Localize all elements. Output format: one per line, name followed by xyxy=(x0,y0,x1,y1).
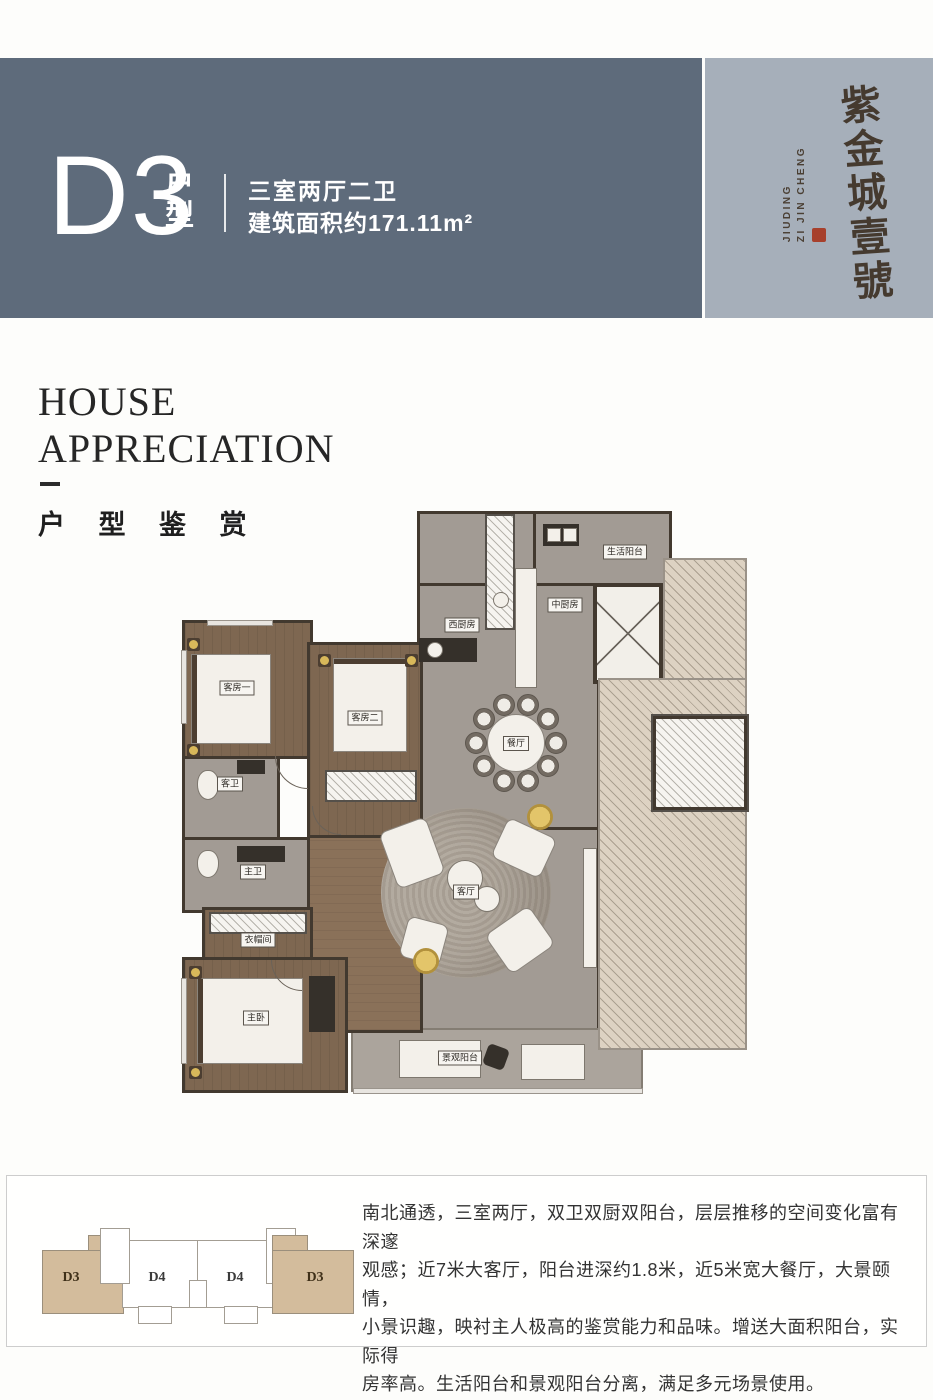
label-guest-room-2: 客房二 xyxy=(347,711,382,726)
common-area-upper xyxy=(665,560,745,680)
dining-chair xyxy=(493,694,515,716)
dining-chair xyxy=(517,694,539,716)
nightstand-lamp xyxy=(405,654,418,667)
elevator-shaft xyxy=(597,587,659,680)
headboard xyxy=(198,979,203,1063)
dining-chair xyxy=(493,770,515,792)
plate-label-d4-left: D4 xyxy=(142,1270,172,1286)
brand-logo-latin: JIUDING ZI JIN CHENG xyxy=(782,146,807,242)
guest-bath-vanity xyxy=(237,760,265,774)
description-line-3: 小景识趣，映衬主人极高的鉴赏能力和品味。增送大面积阳台，实际得 xyxy=(362,1313,914,1370)
bedroom1-top-window xyxy=(207,620,273,626)
master-desk xyxy=(309,976,335,1032)
tv-console xyxy=(583,848,597,968)
label-guest-room-1: 客房一 xyxy=(219,681,254,696)
section-title-en-line2: APPRECIATION xyxy=(38,425,334,472)
bedroom1-window xyxy=(181,650,187,724)
plate-center-stub xyxy=(189,1280,207,1308)
dining-chair xyxy=(545,732,567,754)
unit-area: 建筑面积约171.11m² xyxy=(248,204,473,238)
door-arc xyxy=(275,756,308,789)
washer-fixture xyxy=(493,592,509,608)
unit-type-label: 户 型 xyxy=(165,170,194,232)
brochure-page: { "page": {"background": "#fdfdfb"}, "he… xyxy=(0,0,933,1400)
description-paragraph: 南北通透，三室两厅，双卫双厨双阳台，层层推移的空间变化富有深邃 观感；近7米大客… xyxy=(362,1199,914,1399)
nightstand-lamp xyxy=(189,966,202,979)
plate-label-d3-right: D3 xyxy=(300,1270,330,1286)
gold-side-table xyxy=(413,948,439,974)
guest-bed-2 xyxy=(333,658,407,752)
seal-stamp-icon xyxy=(812,228,826,242)
label-west-kitchen: 西厨房 xyxy=(444,618,479,633)
wardrobe xyxy=(327,772,415,800)
nightstand-lamp xyxy=(318,654,331,667)
utility-shaft xyxy=(487,516,513,628)
headboard xyxy=(334,659,406,664)
label-chinese-kitchen: 中厨房 xyxy=(547,598,582,613)
plate-core-lower xyxy=(224,1306,258,1324)
header-divider xyxy=(224,174,226,232)
label-dining-room: 餐厅 xyxy=(503,736,529,751)
floor-plan: 餐厅 生活阳台 中厨房 西厨房 客房一 客房二 客卫 主卫 衣帽间 xyxy=(175,508,745,1153)
laundry-basin-2 xyxy=(563,528,577,542)
dining-chair xyxy=(517,770,539,792)
balcony-window xyxy=(353,1088,643,1094)
label-master-bedroom: 主卧 xyxy=(243,1011,269,1026)
description-line-1: 南北通透，三室两厅，双卫双厨双阳台，层层推移的空间变化富有深邃 xyxy=(362,1199,914,1256)
label-living-room: 客厅 xyxy=(453,885,479,900)
description-line-4: 房率高。生活阳台和景观阳台分离，满足多元场景使用。 xyxy=(362,1370,914,1399)
nightstand-lamp xyxy=(187,744,200,757)
master-bath-vanity xyxy=(237,846,285,862)
section-title-dash xyxy=(40,482,60,486)
brand-latin-line-2: ZI JIN CHENG xyxy=(796,146,807,242)
section-title-en: HOUSE APPRECIATION xyxy=(38,378,334,472)
plate-label-d4-right: D4 xyxy=(220,1270,250,1286)
headboard xyxy=(192,655,197,743)
dining-table: 餐厅 xyxy=(487,714,545,772)
stair-core xyxy=(653,716,747,810)
plate-label-d3-left: D3 xyxy=(56,1270,86,1286)
kitchen-counter xyxy=(515,568,537,688)
unit-type-char-1: 户 xyxy=(165,170,194,201)
label-life-balcony: 生活阳台 xyxy=(603,545,647,560)
nightstand-lamp xyxy=(189,1066,202,1079)
toilet-fixture xyxy=(197,770,219,800)
guest-bed-1 xyxy=(191,654,271,744)
nightstand-lamp xyxy=(187,638,200,651)
label-cloakroom: 衣帽间 xyxy=(240,933,275,948)
brand-latin-line-1: JIUDING xyxy=(782,146,793,242)
floor-plate-diagram: D3 D4 D4 D3 xyxy=(42,1222,332,1322)
label-master-bath: 主卫 xyxy=(240,865,266,880)
dining-chair xyxy=(465,732,487,754)
section-title-en-line1: HOUSE xyxy=(38,378,334,425)
laundry-basin-1 xyxy=(547,528,561,542)
master-window xyxy=(181,978,187,1064)
description-line-2: 观感；近7米大客厅，阳台进深约1.8米，近5米宽大餐厅，大景颐情， xyxy=(362,1256,914,1313)
balcony-lounge xyxy=(521,1044,585,1080)
label-view-balcony: 景观阳台 xyxy=(438,1051,482,1066)
brand-logo-calligraphy: 紫金城壹號 xyxy=(826,82,899,306)
brand-logo: 紫金城壹號 JIUDING ZI JIN CHENG xyxy=(768,82,918,312)
unit-spec: 三室两厅二卫 xyxy=(248,172,398,206)
unit-type-char-2: 型 xyxy=(165,201,194,232)
plate-core-tower xyxy=(100,1228,130,1284)
west-kitchen-sink xyxy=(427,642,443,658)
plate-core-lower xyxy=(138,1306,172,1324)
toilet-fixture xyxy=(197,850,219,878)
label-guest-bath: 客卫 xyxy=(217,777,243,792)
gold-side-table xyxy=(527,804,553,830)
cloakroom-wardrobe xyxy=(211,914,305,932)
